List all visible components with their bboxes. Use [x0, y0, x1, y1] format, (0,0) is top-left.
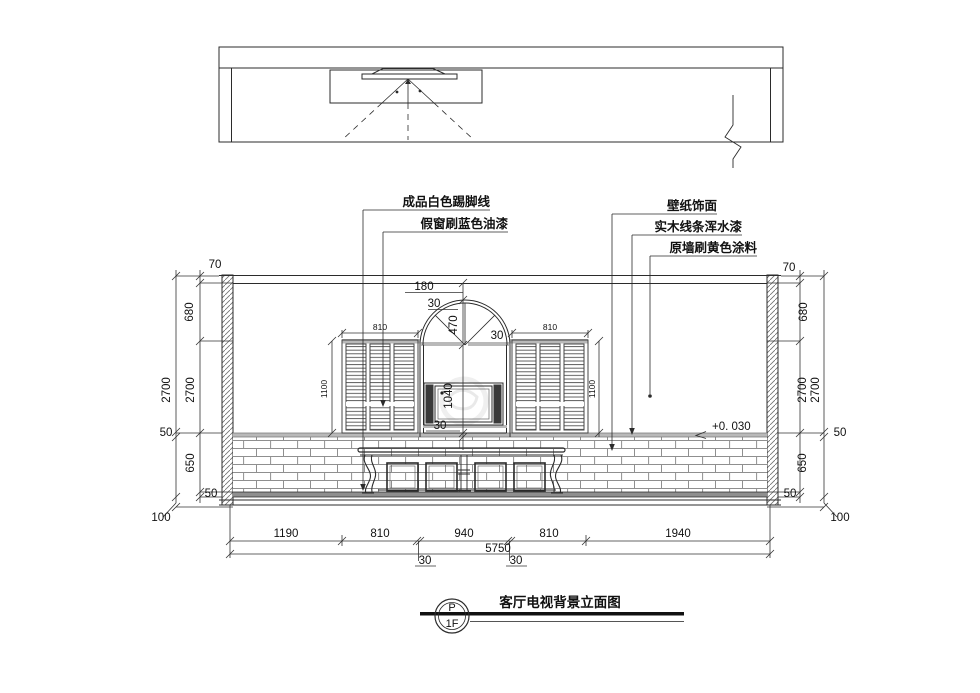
elevation-body	[219, 275, 781, 505]
callout-skirting: 成品白色踢脚线	[402, 194, 490, 209]
level-mark: +0. 030	[712, 421, 751, 433]
callout-fake-window: 假窗刷蓝色油漆	[420, 216, 508, 231]
dim-810-b2: 810	[539, 528, 558, 540]
dim-100-right: 100	[830, 512, 849, 524]
plan-arrowhead-icon	[405, 79, 411, 84]
dim-1100-right: 1100	[587, 380, 597, 399]
dim-2700-right-inner: 2700	[797, 377, 809, 403]
drawing-title: 客厅电视背景立面图	[498, 594, 621, 610]
dim-5750: 5750	[485, 543, 511, 555]
callout-yellow-paint: 原墙刷黄色涂料	[669, 240, 757, 255]
dim-1100-left: 1100	[319, 380, 329, 399]
dim-1190: 1190	[274, 528, 299, 540]
title-block: P 1F 客厅电视背景立面图	[420, 594, 684, 633]
dim-50-left-outer: 50	[160, 427, 173, 439]
louver-window-right	[512, 340, 588, 433]
plan-outline	[219, 47, 783, 142]
dim-70-right: 70	[783, 262, 796, 274]
right-wall-section	[767, 275, 778, 505]
cad-drawing-sheet: 成品白色踢脚线 假窗刷蓝色油漆 壁纸饰面 实木线条浑水漆 原墙刷黄色涂料	[0, 0, 980, 693]
elevation-drawing: 成品白色踢脚线 假窗刷蓝色油漆 壁纸饰面 实木线条浑水漆 原墙刷黄色涂料	[0, 0, 980, 693]
dim-180: 180	[414, 281, 433, 293]
plan-tv-niche	[330, 70, 482, 103]
dim-2700-left-outer: 2700	[161, 377, 173, 403]
callout-wood-trim: 实木线条浑水漆	[654, 219, 742, 234]
dim-30-arch: 30	[428, 298, 441, 310]
plan-dot	[419, 90, 422, 93]
dim-50-right-outer: 50	[834, 427, 847, 439]
ceiling-lines	[219, 276, 781, 284]
dim-2700-left-inner: 2700	[185, 377, 197, 403]
louver-mid-rail	[346, 402, 414, 406]
dim-70-left: 70	[209, 259, 222, 271]
plan-sightlines-dashed	[342, 103, 474, 140]
dim-30-sill: 30	[491, 330, 504, 342]
plan-view-strip	[219, 47, 783, 168]
louver-mid-rail	[516, 402, 584, 406]
break-line-icon	[725, 95, 741, 168]
dim-100-left: 100	[151, 512, 170, 524]
dim-680-left: 680	[184, 302, 196, 321]
dim-30-gap-left: 30	[419, 555, 432, 567]
dim-1040: 1040	[443, 383, 455, 409]
tv-speaker-left	[426, 385, 434, 424]
dim-470: 470	[448, 315, 460, 334]
dim-30-gap-right: 30	[510, 555, 523, 567]
dim-680-right: 680	[798, 302, 810, 321]
dim-30-bottom: 30	[434, 420, 447, 432]
dim-50-left-inner: 50	[205, 488, 218, 500]
plan-tv-body	[372, 69, 445, 75]
dim-650-right: 650	[797, 453, 809, 472]
niche-sill	[468, 342, 509, 346]
drawing-tag-top: P	[448, 602, 455, 614]
leader-dot	[648, 394, 652, 398]
callout-labels: 成品白色踢脚线 假窗刷蓝色油漆 壁纸饰面 实木线条浑水漆 原墙刷黄色涂料	[402, 194, 757, 255]
plan-end-walls	[232, 68, 771, 142]
plan-dot	[396, 91, 399, 94]
dim-810-left: 810	[373, 322, 387, 332]
callout-wallpaper: 壁纸饰面	[667, 198, 718, 213]
dim-940: 940	[454, 528, 473, 540]
drawing-tag-bottom: 1F	[446, 618, 459, 630]
dim-650-left: 650	[185, 453, 197, 472]
niche-sill	[421, 342, 462, 346]
trim-band	[233, 433, 767, 437]
dim-810-right: 810	[543, 322, 557, 332]
dim-1940: 1940	[665, 528, 691, 540]
skirting-band	[233, 492, 767, 497]
dim-2700-right-outer: 2700	[810, 377, 822, 403]
dim-50-right-inner: 50	[784, 488, 797, 500]
floor-lines	[219, 500, 781, 505]
left-wall-section	[222, 275, 233, 505]
tv-speaker-right	[494, 385, 502, 424]
dim-810-b1: 810	[370, 528, 389, 540]
louver-window-left	[342, 340, 418, 433]
plan-tv-panel	[362, 74, 457, 79]
brick-band	[233, 437, 767, 492]
